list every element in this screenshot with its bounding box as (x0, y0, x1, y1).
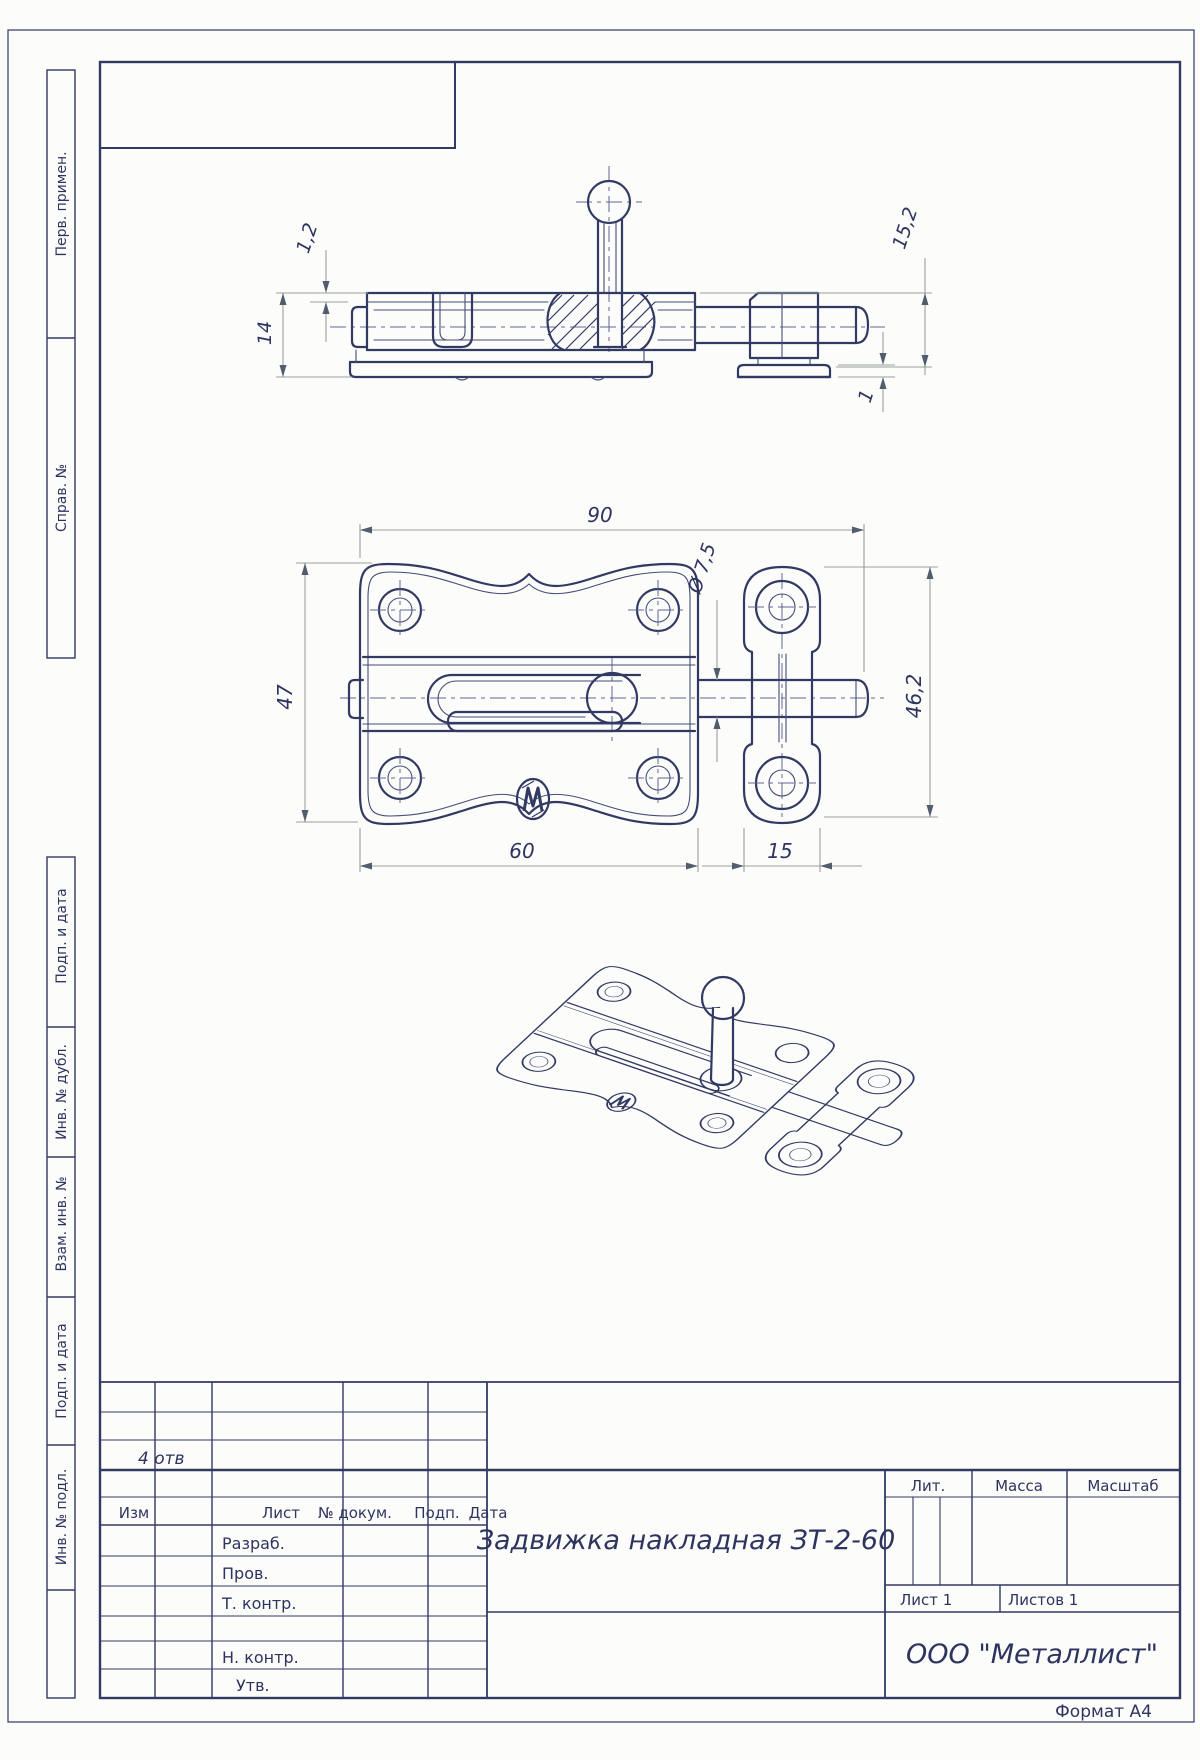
header-doc: № докум. (318, 1504, 392, 1522)
document-title: Задвижка накладная ЗТ-2-60 (477, 1525, 896, 1556)
margin-strip: Перв. примен. Справ. № Подп. и дата Инв.… (47, 70, 75, 1698)
iso-knob-pin (702, 977, 744, 1085)
margin-label-vzam-inv: Взам. инв. № (54, 1176, 70, 1271)
sheet-number: Лист 1 (900, 1591, 952, 1609)
role-utv: Утв. (236, 1676, 270, 1695)
header-podp: Подп. (414, 1504, 459, 1522)
side-view: 14 1,2 15,2 1 (254, 166, 932, 412)
bolt-rail (448, 712, 622, 731)
svg-text:1,2: 1,2 (292, 220, 322, 256)
title-block: 4 отв Изм Лист № докум. Подп. Дата Разра… (100, 1382, 1180, 1698)
role-nkontr: Н. контр. (222, 1648, 299, 1667)
scale-label: Масштаб (1087, 1477, 1158, 1495)
keeper-side (750, 293, 818, 358)
isometric-view (491, 963, 958, 1192)
dim-bolt-diameter: Ø 7,5 (684, 540, 721, 762)
svg-text:60: 60 (509, 839, 534, 863)
header-list: Лист (262, 1504, 300, 1522)
svg-text:46,2: 46,2 (902, 674, 926, 719)
svg-text:47: 47 (273, 684, 297, 710)
dim-plate-height: 47 (273, 563, 372, 822)
bolt-slot (428, 675, 640, 723)
role-prov: Пров. (222, 1564, 269, 1583)
lit-label: Лит. (911, 1477, 946, 1495)
margin-label-sprav-no: Справ. № (54, 464, 70, 532)
margin-label-podp-data-2: Подп. и дата (54, 1323, 70, 1418)
svg-text:1: 1 (854, 387, 879, 405)
bolt-strap (433, 293, 472, 347)
header-data: Дата (469, 1504, 508, 1522)
front-view: 90 Ø 7,5 47 46,2 (273, 503, 938, 872)
revision-note: 4 отв (138, 1449, 185, 1469)
mass-label: Масса (995, 1477, 1043, 1495)
page-frame (8, 30, 1194, 1722)
dim-keeper-total-height: 15,2 (700, 205, 932, 375)
svg-text:15: 15 (767, 839, 792, 863)
role-razrab: Разраб. (222, 1534, 285, 1553)
margin-label-podp-data-1: Подп. и дата (54, 888, 70, 983)
svg-text:90: 90 (587, 503, 612, 527)
company-name: ООО "Металлист" (906, 1639, 1158, 1670)
section-hatching (548, 295, 655, 349)
top-stamp-box (100, 62, 455, 148)
dim-total-width: 90 (360, 503, 864, 672)
svg-text:15,2: 15,2 (888, 205, 922, 252)
sheets-total: Листов 1 (1008, 1591, 1078, 1609)
screw-holes (370, 580, 688, 808)
role-tkontr: Т. контр. (221, 1594, 296, 1613)
margin-label-perv-primen: Перв. примен. (54, 151, 70, 256)
margin-label-inv-podl: Инв. № подл. (54, 1469, 70, 1566)
margin-label-inv-dubl: Инв. № дубл. (54, 1044, 70, 1140)
format-note: Формат А4 (1055, 1702, 1152, 1722)
dim-keeper-width: 15 (702, 828, 862, 872)
dim-plate-width: 60 (360, 828, 698, 872)
header-izm: Изм (119, 1504, 150, 1522)
dim-cover-gap: 1,2 (292, 220, 348, 342)
svg-text:14: 14 (254, 321, 276, 345)
latch-plate (360, 564, 698, 824)
drawing-canvas: Перв. примен. Справ. № Подп. и дата Инв.… (0, 0, 1200, 1760)
drawing-sheet: Перв. примен. Справ. № Подп. и дата Инв.… (0, 0, 1200, 1760)
dim-keeper-height: 46,2 (824, 567, 938, 817)
